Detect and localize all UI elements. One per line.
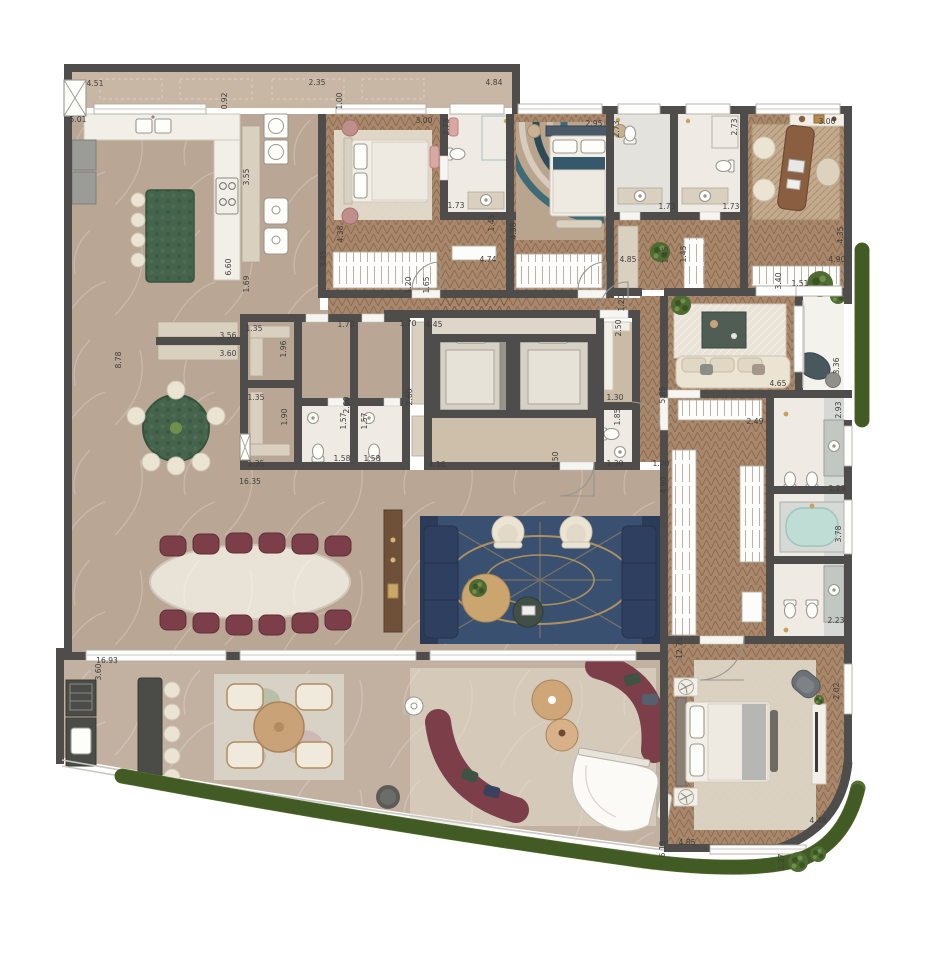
dimension-label: 3.60 <box>94 663 103 680</box>
dimension-label: 4.84 <box>486 78 503 87</box>
dryer-icon <box>264 140 288 164</box>
bbq-area <box>66 680 96 766</box>
suite-1 <box>333 120 439 288</box>
armchair <box>492 516 524 548</box>
dimension-label: 2.60 <box>405 388 414 405</box>
dimension-label: 1.35 <box>248 393 265 402</box>
dimension-label: 2.23 <box>828 616 845 625</box>
bar-counter <box>138 678 162 778</box>
landing-floor <box>424 418 596 462</box>
dimension-label: 0.92 <box>220 92 229 109</box>
chair <box>227 742 263 768</box>
dimension-label: 3.85 <box>319 250 328 267</box>
dimension-label: 1.65 <box>422 276 431 293</box>
dimension-label: 1.69 <box>242 275 251 292</box>
dimension-label: 1.00 <box>335 92 344 109</box>
dimension-label: 1.70 <box>400 319 417 328</box>
sink-icon <box>700 191 711 202</box>
dimension-label: 4.85 <box>679 838 696 847</box>
chair <box>167 457 185 475</box>
dimension-label: 4.85 <box>620 255 637 264</box>
toilet-icon <box>716 160 734 172</box>
dimension-label: 4.90 <box>659 476 668 493</box>
dimension-label: 4.74 <box>480 255 497 264</box>
dimension-label: 1.20 <box>617 294 626 311</box>
laundry-sink-icon <box>264 228 288 254</box>
bidet-icon <box>806 600 818 618</box>
toilet-icon <box>447 148 465 160</box>
dimension-label: 3.78 <box>834 525 843 542</box>
dimension-label: 1.35 <box>246 324 263 333</box>
bar-stool <box>164 682 180 698</box>
tv-console <box>384 510 402 632</box>
floor-plan: 4.512.350.925.014.841.003.002.731.731.45… <box>0 0 928 965</box>
stool <box>131 213 145 227</box>
dimension-label: 2.73 <box>442 118 451 135</box>
dimension-label: 2.50 <box>614 319 623 336</box>
floor-plan-page: 4.512.350.925.014.841.003.002.731.731.45… <box>0 0 928 965</box>
laundry-sink-icon <box>264 198 288 224</box>
chair <box>227 684 263 710</box>
stool <box>131 193 145 207</box>
dimension-label: 8.78 <box>114 351 123 368</box>
sink-icon <box>829 585 840 596</box>
outdoor-dining <box>214 674 344 780</box>
elevator-cab <box>446 350 494 404</box>
tv-icon <box>815 712 818 772</box>
shaft-box <box>240 434 250 460</box>
dimension-label: 4.38 <box>336 225 345 242</box>
guest-chair <box>816 158 840 186</box>
pillow <box>354 144 367 169</box>
armchair <box>560 516 592 548</box>
dimension-label: 1.45 <box>661 246 670 263</box>
stool <box>131 253 145 267</box>
toilet-icon <box>312 444 324 462</box>
sink-icon <box>829 441 840 452</box>
decor <box>388 584 398 598</box>
stool <box>131 233 145 247</box>
bench <box>770 710 778 772</box>
dimension-label: 1.73 <box>448 201 465 210</box>
dimension-label: 3.55 <box>242 168 251 185</box>
sofa <box>424 526 458 638</box>
dimension-label: 4.16 <box>429 460 446 469</box>
dimension-label: 5.85 <box>658 386 667 403</box>
pillow <box>553 140 577 153</box>
dimension-label: 4.65 <box>770 379 787 388</box>
shower-head-icon <box>686 119 690 123</box>
dimension-label: 3.36 <box>832 357 841 374</box>
tray <box>522 606 535 615</box>
dimension-label: 2.73 <box>730 118 739 135</box>
coffee-machine-icon <box>799 116 805 122</box>
dimension-label: 2.95 <box>586 119 603 128</box>
washer-icon <box>264 114 288 138</box>
bench <box>556 220 602 228</box>
toilet-icon <box>624 126 636 144</box>
dimension-label: 2.73 <box>612 120 621 137</box>
pillow <box>354 173 367 198</box>
master-bedroom <box>674 660 826 830</box>
sink-icon <box>615 447 626 458</box>
dimension-label: 1.90 <box>280 408 289 425</box>
dimension-label: 6.15 <box>658 840 667 857</box>
pillow <box>690 744 704 776</box>
dimension-label: 1.58 <box>364 454 381 463</box>
faucet-icon <box>784 628 789 633</box>
tv-console <box>812 704 826 784</box>
plant-icon <box>810 846 826 862</box>
bed-headboard <box>344 138 352 204</box>
nightstand <box>528 125 541 138</box>
dimension-label: 4.38 <box>509 222 518 239</box>
dimension-label: 3.60 <box>220 349 237 358</box>
dimension-label: 4.90 <box>829 255 846 264</box>
decor-icon <box>679 790 694 805</box>
laundry-cabinet <box>242 126 260 262</box>
chair <box>167 381 185 399</box>
dimension-label: 2.23 <box>829 484 846 493</box>
toilet-icon <box>784 600 796 618</box>
bench <box>430 146 439 168</box>
bed-headboard <box>676 698 686 786</box>
decor-icon <box>679 680 694 695</box>
pillow <box>690 706 704 738</box>
dimension-label: 1.73 <box>659 202 676 211</box>
dimension-label: 1.85 <box>613 408 622 425</box>
dimension-label: 4.48 <box>810 816 827 825</box>
chair <box>192 453 210 471</box>
plant-icon <box>814 695 824 705</box>
chair <box>127 407 145 425</box>
living-room <box>384 510 660 644</box>
bathtub <box>786 508 838 546</box>
dimension-label: 1.73 <box>723 202 740 211</box>
dimension-label: 1.57 <box>339 412 348 429</box>
dimension-label: 4.45 <box>426 320 443 329</box>
dimension-label: 3.00 <box>819 117 836 126</box>
sink-icon <box>308 413 319 424</box>
plant-icon <box>469 579 487 597</box>
dimension-label: 1.45 <box>487 214 496 231</box>
chair <box>142 453 160 471</box>
dimension-label: 3.00 <box>416 116 433 125</box>
bar-stool <box>164 748 180 764</box>
pillow <box>752 364 765 375</box>
shower-head-icon <box>784 412 789 417</box>
refrigerator-icon <box>72 140 96 170</box>
dimension-label: 1.27 <box>777 853 786 870</box>
chair <box>296 742 332 768</box>
pillow <box>642 694 658 705</box>
plant-icon <box>788 852 808 872</box>
dimension-label: 1.96 <box>279 340 288 357</box>
dimension-label: 1.45 <box>679 245 688 262</box>
shaft-box <box>64 80 86 116</box>
duvet <box>372 142 428 200</box>
dresser <box>742 592 762 622</box>
oven-column-icon <box>72 172 96 204</box>
dimension-label: 1.30 <box>607 393 624 402</box>
family-room <box>671 295 790 388</box>
blanket <box>553 157 605 170</box>
coffee-table <box>462 574 510 622</box>
sink-icon <box>481 195 492 206</box>
sink-icon <box>635 191 646 202</box>
dimension-label: 1.35 <box>248 459 265 468</box>
dimension-label: 1.20 <box>404 276 413 293</box>
elevator-hall-floor <box>432 318 596 334</box>
dimension-label: 3.56 <box>220 331 237 340</box>
dimension-label: 5.01 <box>70 115 87 124</box>
office-chair <box>753 137 775 159</box>
pillow <box>581 140 605 153</box>
bar-stool <box>164 704 180 720</box>
dimension-label: 2.60 <box>342 396 351 413</box>
dimension-label: 6.60 <box>224 258 233 275</box>
dimension-label: 1.20 <box>653 459 670 468</box>
dimension-label: 2.02 <box>832 682 841 699</box>
coffee-table <box>702 312 746 348</box>
dimension-label: 2.93 <box>834 401 843 418</box>
dimension-label: 1.58 <box>334 454 351 463</box>
chair <box>296 684 332 710</box>
dimension-label: 4.35 <box>836 226 845 243</box>
plant-icon <box>671 295 691 315</box>
bar-stool <box>164 726 180 742</box>
duvet <box>553 170 605 213</box>
throw-blanket <box>742 704 766 780</box>
sink-icon <box>71 728 91 754</box>
elevator-cab <box>528 350 580 404</box>
dimension-label: 12.75 <box>675 637 684 659</box>
dimension-label: 1.30 <box>607 459 624 468</box>
dimension-label: 3.40 <box>774 272 783 289</box>
dimension-label: 1.57 <box>360 412 369 429</box>
office-chair <box>753 179 775 201</box>
dimension-label: 1.50 <box>551 451 560 468</box>
tub-filler-icon <box>810 504 815 509</box>
bar-area <box>138 678 180 785</box>
sofa <box>622 526 656 638</box>
laptop-icon <box>788 159 805 173</box>
pillow <box>700 364 713 375</box>
dimension-label: 1.70 <box>338 320 355 329</box>
pouf <box>342 120 358 136</box>
dimension-label: 1.51 <box>792 279 809 288</box>
dimension-label: 2.35 <box>309 78 326 87</box>
side-table <box>405 697 423 715</box>
dimension-label: 16.35 <box>239 477 261 486</box>
service-balcony-floor <box>72 72 512 108</box>
dimension-label: 2.49 <box>747 417 764 426</box>
pouf <box>342 208 358 224</box>
chair <box>207 407 225 425</box>
dimension-label: 4.51 <box>87 79 104 88</box>
